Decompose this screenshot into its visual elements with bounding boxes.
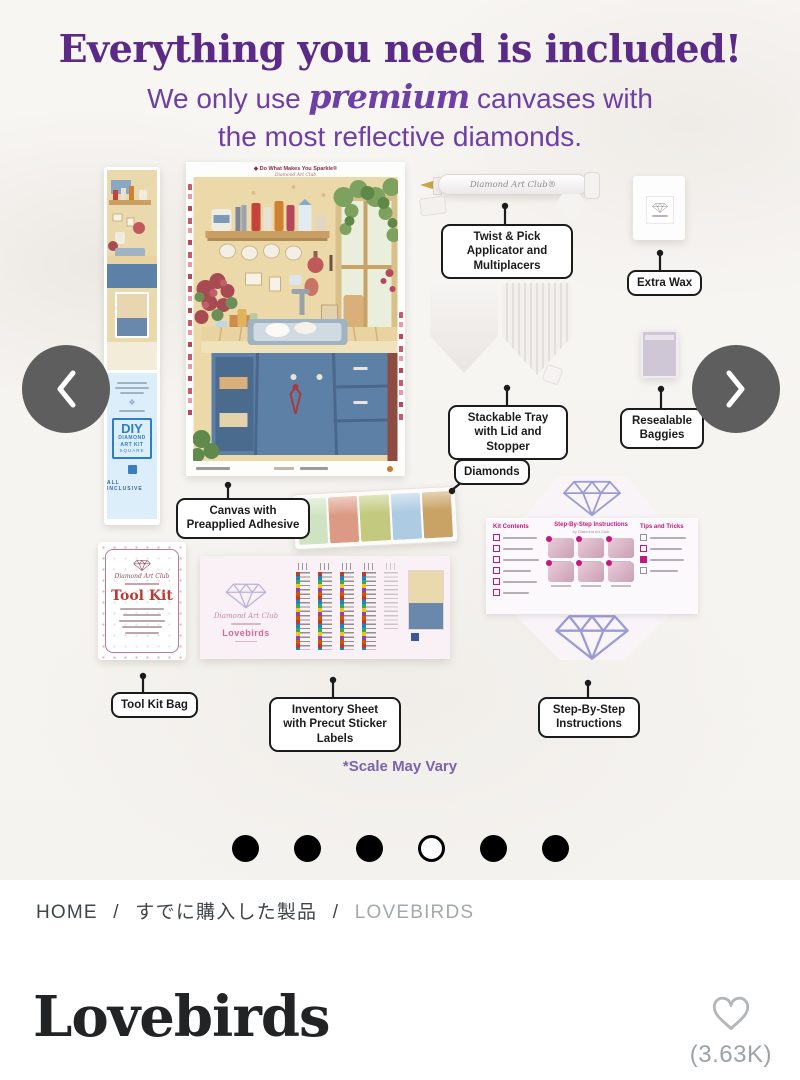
kit-canvas: ◆ Do What Makes You Sparkle® Diamond Art… xyxy=(186,162,405,476)
canvas-color-chart-strip xyxy=(188,184,192,422)
applicator-pen: Diamond Art Club® xyxy=(438,174,588,195)
facebook-icon xyxy=(128,465,137,474)
callout-canvas: Canvas with Preapplied Adhesive xyxy=(176,498,310,539)
diamond-logo-icon xyxy=(652,203,668,213)
canvas-color-chart-strip xyxy=(399,312,403,422)
callout-diamonds: Diamonds xyxy=(454,459,530,485)
scale-disclaimer: *Scale May Vary xyxy=(0,758,800,775)
diamond-logo-icon: ❖ xyxy=(128,399,135,407)
diy-kit-badge: DIY DIAMOND ART KIT SQUARE xyxy=(112,418,151,459)
carousel-prev-button[interactable] xyxy=(22,345,110,433)
kit-contents-slide[interactable]: ❖ DIY DIAMOND ART KIT SQUARE ALL INCLUSI… xyxy=(0,0,800,880)
carousel-dots xyxy=(0,835,800,862)
carousel-next-button[interactable] xyxy=(692,345,780,433)
sticker-label-column xyxy=(318,572,332,650)
tube-artwork xyxy=(107,170,157,370)
breadcrumb-current: LOVEBIRDS xyxy=(355,902,475,923)
brand-seal-icon xyxy=(387,466,393,472)
instructions-pamphlet: Kit Contents Step-By-Step Instructions b… xyxy=(478,474,706,660)
diamond-outline-icon xyxy=(550,614,634,661)
applicator-pen-cap xyxy=(584,172,600,199)
diamond-logo-icon xyxy=(133,560,151,571)
carousel-dot[interactable] xyxy=(356,835,383,862)
sticker-label-column xyxy=(384,572,398,632)
chevron-left-icon xyxy=(51,367,81,411)
multiplacer-piece xyxy=(556,194,586,221)
callout-inventory-sheet: Inventory Sheet with Precut Sticker Labe… xyxy=(269,697,401,752)
carousel-dot[interactable] xyxy=(294,835,321,862)
carousel-dot[interactable] xyxy=(232,835,259,862)
sticker-label-column xyxy=(340,572,354,650)
heart-icon xyxy=(712,996,750,1031)
callout-applicator: Twist & Pick Applicator and Multiplacers xyxy=(441,224,573,279)
product-image-carousel: Everything you need is included! We only… xyxy=(0,0,800,880)
breadcrumb-home[interactable]: HOME xyxy=(36,902,98,923)
callout-resealable-baggies: Resealable Baggies xyxy=(620,408,704,449)
sticker-label-column xyxy=(362,572,376,650)
canvas-artwork-kitchen-scene xyxy=(193,177,398,461)
inventory-sheet: Diamond Art Club Lovebirds xyxy=(200,556,450,659)
canvas-header: ◆ Do What Makes You Sparkle® Diamond Art… xyxy=(186,166,405,178)
inventory-artwork-thumbnail xyxy=(408,570,444,630)
tube-label: ❖ DIY DIAMOND ART KIT SQUARE ALL INCLUSI… xyxy=(107,373,157,519)
stackable-tray-ridged xyxy=(502,283,572,375)
callout-tool-kit-bag: Tool Kit Bag xyxy=(111,692,198,718)
favorite-button[interactable] xyxy=(712,996,750,1031)
favorite-widget: (3.63K) xyxy=(690,996,772,1069)
diamond-outline-icon xyxy=(562,480,622,517)
carousel-dot[interactable] xyxy=(418,835,445,862)
instruction-step-thumbnails xyxy=(546,538,636,582)
chevron-right-icon xyxy=(721,367,751,411)
breadcrumb-category[interactable]: すでに購入した製品 xyxy=(135,902,317,923)
tool-kit-bag: Diamond Art Club Tool Kit xyxy=(98,542,186,660)
product-title: Lovebirds xyxy=(33,984,330,1050)
carousel-dot[interactable] xyxy=(480,835,507,862)
breadcrumb-separator: / xyxy=(113,902,119,923)
callout-instructions: Step-By-Step Instructions xyxy=(538,697,640,738)
canvas-footer xyxy=(196,466,395,473)
multiplacer-piece xyxy=(419,195,447,216)
rolled-canvas-tube: ❖ DIY DIAMOND ART KIT SQUARE ALL INCLUSI… xyxy=(104,167,160,525)
breadcrumb: HOME / すでに購入した製品 / LOVEBIRDS xyxy=(36,897,474,924)
favorite-count: (3.63K) xyxy=(690,1041,772,1069)
tray-stopper xyxy=(542,364,564,386)
diamond-bags-strip xyxy=(292,486,459,551)
callout-extra-wax: Extra Wax xyxy=(627,270,702,296)
extra-wax-packet xyxy=(633,176,685,240)
resealable-baggie xyxy=(641,330,678,378)
product-page: Everything you need is included! We only… xyxy=(0,0,800,1080)
wax-label xyxy=(646,196,674,224)
callout-stackable-tray: Stackable Tray with Lid and Stopper xyxy=(448,405,568,460)
stackable-tray xyxy=(430,285,498,373)
carousel-dot[interactable] xyxy=(542,835,569,862)
sticker-label-column xyxy=(296,572,310,650)
diamond-outline-icon xyxy=(225,583,267,609)
breadcrumb-separator: / xyxy=(333,902,339,923)
